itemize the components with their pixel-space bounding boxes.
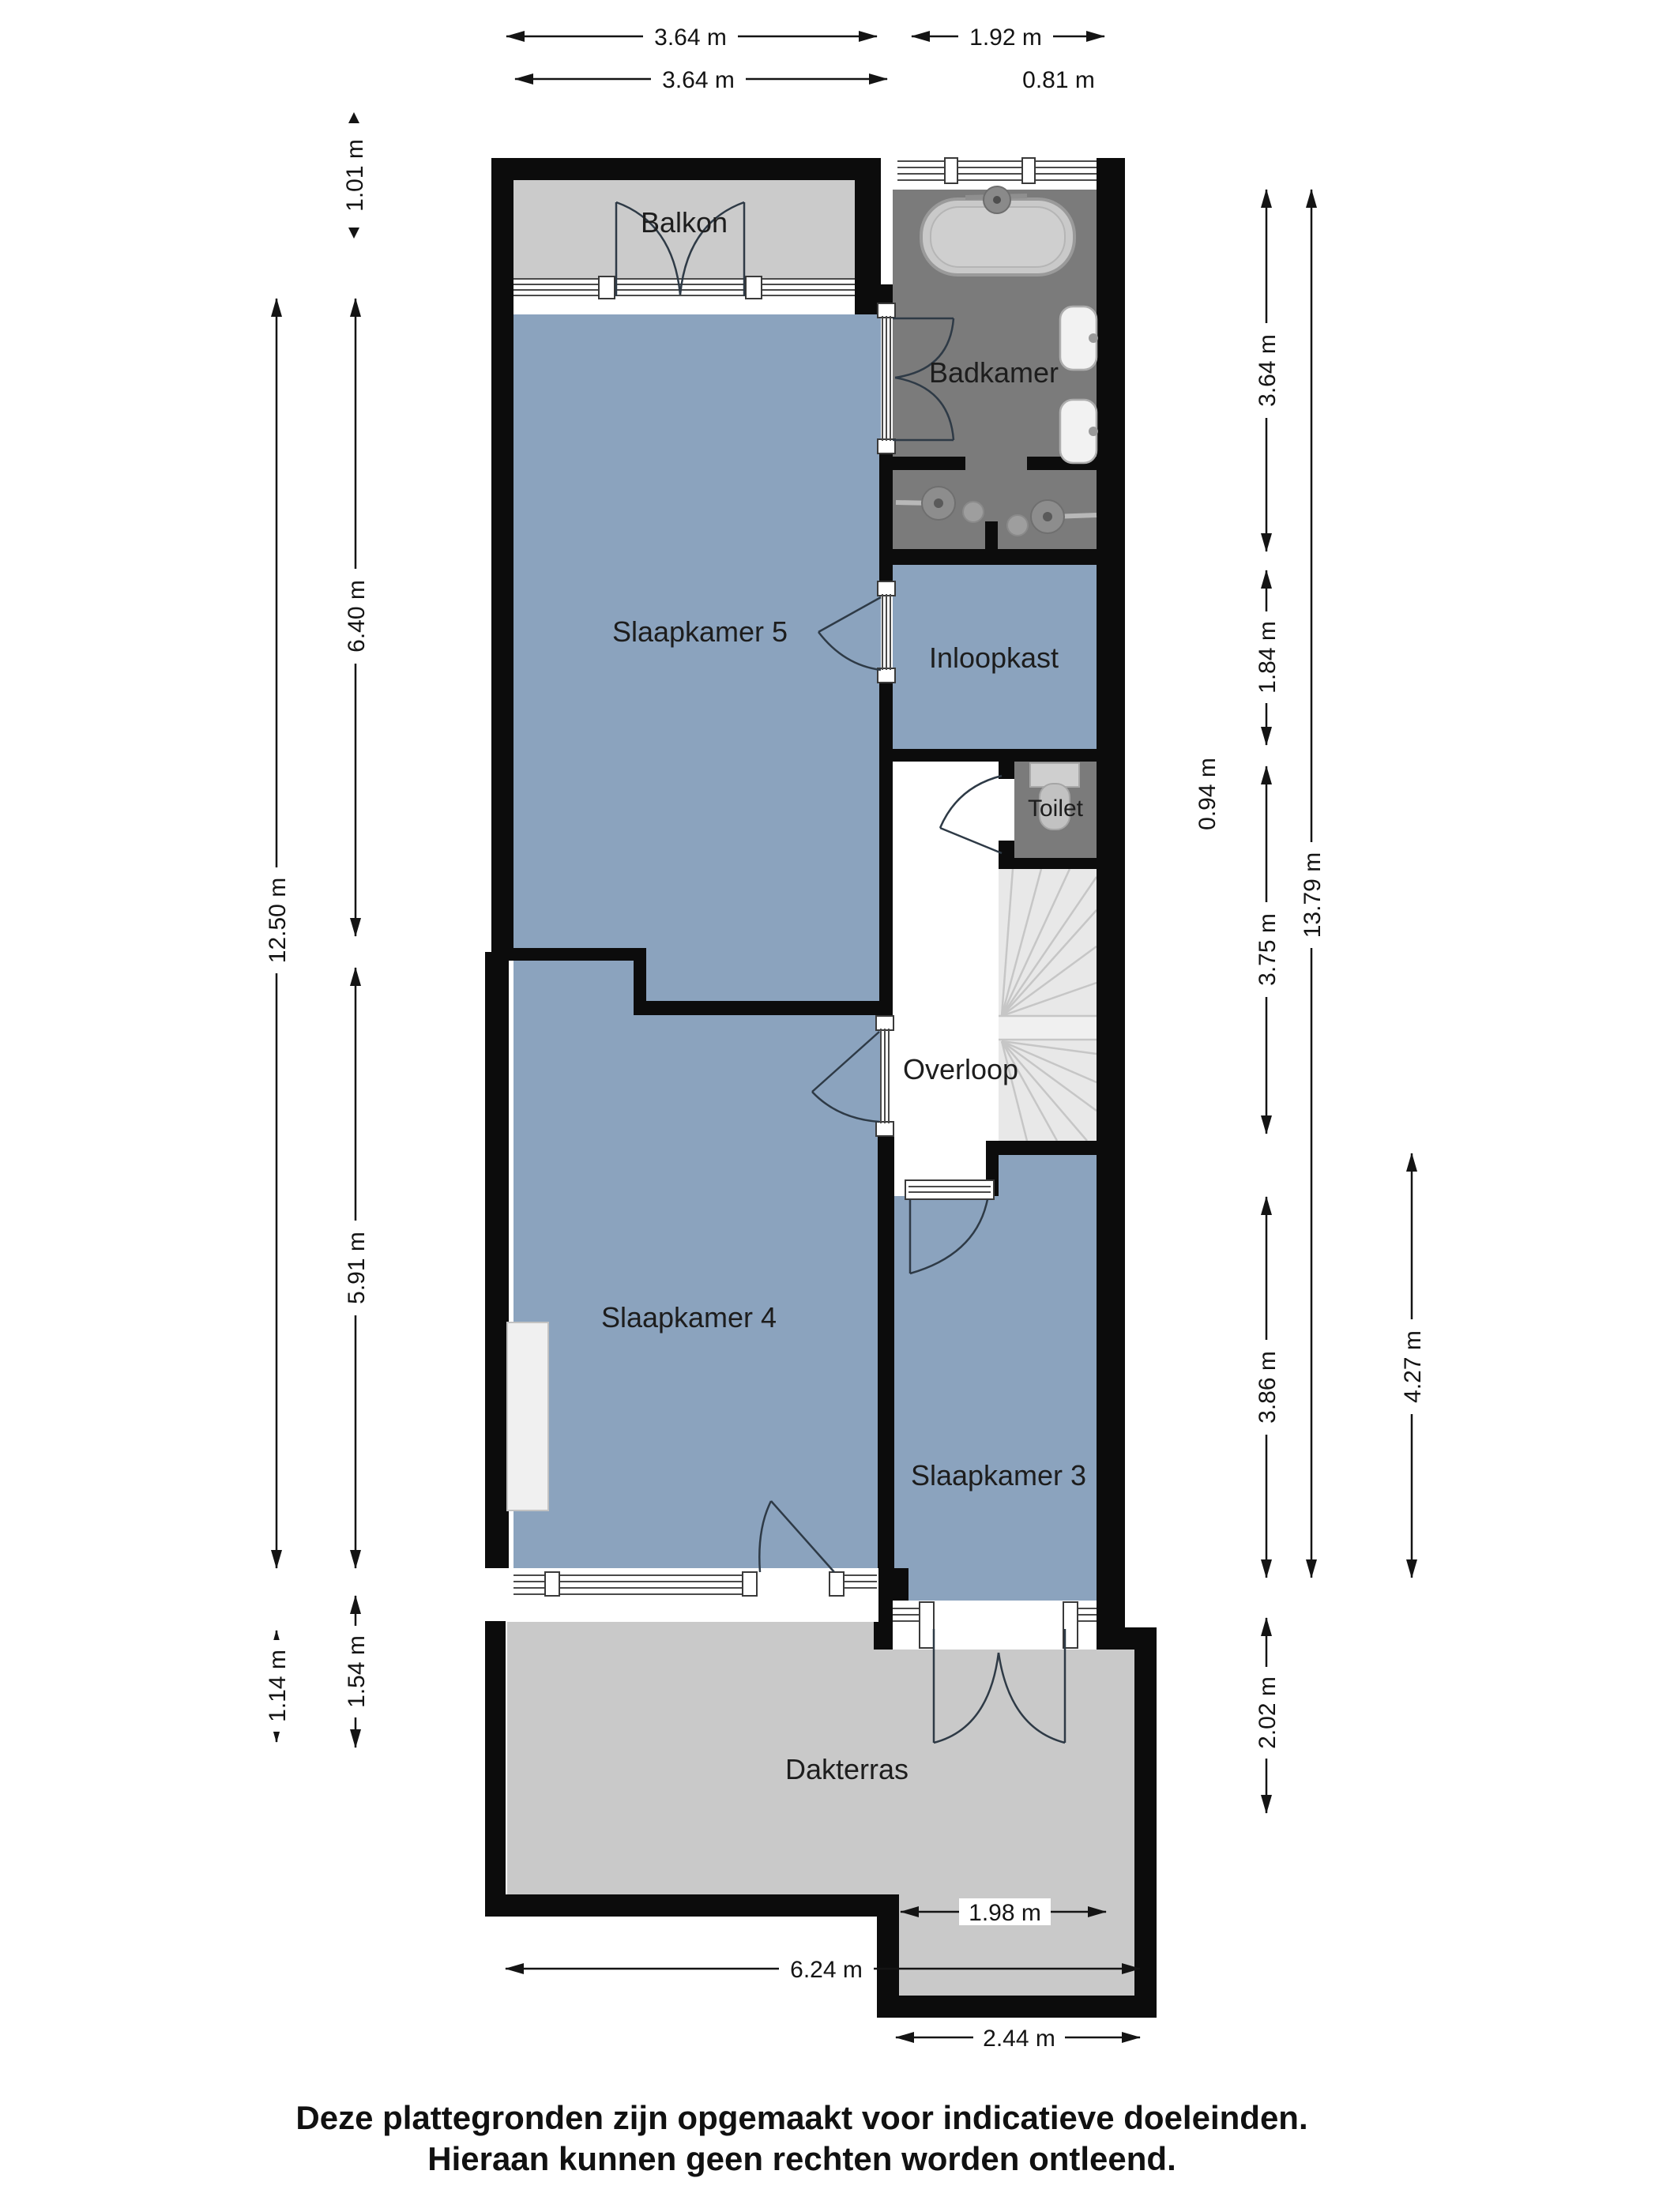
dim-right-toilet: 0.94 m [1194, 758, 1221, 830]
badkamer-window [893, 156, 1097, 190]
svg-text:1.84 m: 1.84 m [1255, 621, 1281, 694]
wall-niche [507, 1322, 548, 1510]
svg-text:3.86 m: 3.86 m [1255, 1351, 1281, 1424]
dim-right-total: 13.79 m [1298, 190, 1326, 1578]
disclaimer-line2: Hieraan kunnen geen rechten worden ontle… [0, 2139, 1604, 2180]
sink-icon [1060, 307, 1098, 370]
floorplan-page: Balkon Badkamer Slaapkamer 5 Inloopkast … [0, 0, 1659, 2212]
wall-segment [999, 841, 1014, 858]
dim-right-inloopkast: 1.84 m [1253, 570, 1281, 745]
svg-text:6.24 m: 6.24 m [790, 1957, 863, 1983]
svg-text:3.64 m: 3.64 m [662, 67, 735, 93]
svg-text:3.64 m: 3.64 m [654, 24, 727, 51]
disclaimer-line1: Deze plattegronden zijn opgemaakt voor i… [0, 2097, 1604, 2139]
dim-left-balkon-depth: 1.01 m [342, 112, 368, 239]
wall-segment [985, 521, 998, 553]
dim-right-terras: 2.02 m [1253, 1618, 1281, 1813]
dim-top-balkon-inner: 3.64 m [515, 66, 887, 93]
balkon-window [513, 276, 855, 314]
room-overloop-floor [893, 762, 999, 1183]
svg-text:6.40 m: 6.40 m [344, 580, 370, 653]
svg-text:13.79 m: 13.79 m [1300, 852, 1326, 938]
svg-text:3.64 m: 3.64 m [1255, 334, 1281, 407]
wall-segment [1134, 1627, 1157, 2018]
label-inloopkast: Inloopkast [929, 641, 1059, 674]
sink-icon [1060, 400, 1098, 463]
wall-segment [491, 314, 513, 952]
wall-segment [491, 948, 646, 961]
room-dakterras-floor [507, 1622, 1134, 1996]
svg-text:2.02 m: 2.02 m [1255, 1676, 1281, 1749]
wall-segment [879, 442, 893, 594]
svg-text:2.44 m: 2.44 m [983, 2026, 1055, 2052]
wall-segment [879, 671, 893, 1029]
label-badkamer: Badkamer [929, 356, 1059, 389]
dim-right-overloop: 3.75 m [1253, 766, 1281, 1134]
label-slaapkamer5: Slaapkamer 5 [612, 615, 788, 648]
svg-text:0.94 m: 0.94 m [1194, 758, 1221, 830]
dim-right-sk3: 3.86 m [1253, 1197, 1281, 1578]
svg-text:4.27 m: 4.27 m [1400, 1330, 1426, 1403]
label-toilet: Toilet [1028, 796, 1084, 822]
svg-text:0.81 m: 0.81 m [1022, 67, 1095, 93]
wall-segment [893, 549, 1097, 565]
floorplan-drawing: Balkon Badkamer Slaapkamer 5 Inloopkast … [0, 0, 1659, 2212]
svg-text:1.14 m: 1.14 m [265, 1650, 291, 1722]
dim-left-sk5: 6.40 m [342, 299, 370, 936]
svg-text:1.54 m: 1.54 m [344, 1635, 370, 1708]
wall-segment [893, 749, 1097, 762]
wall-segment [485, 1621, 506, 1917]
slaapkamer3-window [893, 1601, 1097, 1650]
dim-top-badkamer: 1.92 m [912, 23, 1104, 51]
dim-top-balkon-outer: 3.64 m [506, 23, 877, 51]
label-slaapkamer4: Slaapkamer 4 [601, 1301, 777, 1334]
label-dakterras: Dakterras [785, 1753, 908, 1785]
dim-right-badkamer: 3.64 m [1253, 190, 1281, 551]
svg-text:12.50 m: 12.50 m [265, 878, 291, 963]
room-slaapkamer4-floor [513, 961, 881, 1568]
dim-right-sk3-full: 4.27 m [1398, 1153, 1426, 1578]
dim-bottom-terras: 2.44 m [896, 2024, 1140, 2052]
dim-left-terras-edge: 1.14 m [263, 1631, 291, 1742]
dim-left-terras-step: 1.54 m [342, 1596, 370, 1747]
room-floors [507, 180, 1134, 1996]
room-slaapkamer5-floor [513, 312, 881, 1001]
svg-text:1.92 m: 1.92 m [969, 24, 1042, 51]
svg-text:5.91 m: 5.91 m [344, 1232, 370, 1304]
label-balkon: Balkon [641, 206, 728, 239]
svg-text:1.01 m: 1.01 m [342, 139, 368, 212]
slaapkamer4-window [509, 1568, 878, 1622]
disclaimer: Deze plattegronden zijn opgemaakt voor i… [0, 2097, 1604, 2180]
wall-segment [1097, 158, 1125, 1650]
dim-left-sk4: 5.91 m [342, 968, 370, 1568]
svg-text:1.98 m: 1.98 m [969, 1900, 1041, 1926]
wall-segment [485, 952, 509, 1568]
wall-segment [485, 1894, 899, 1917]
wall-segment [634, 1001, 893, 1015]
dim-top-offset: 0.81 m [1022, 67, 1095, 93]
wall-segment [855, 158, 881, 314]
dim-left-total: 12.50 m [263, 299, 291, 1568]
wall-segment [999, 858, 1097, 869]
wall-segment [893, 457, 965, 470]
svg-text:3.75 m: 3.75 m [1255, 913, 1281, 986]
wall-segment [986, 1141, 1097, 1155]
wall-segment [491, 180, 513, 314]
stairs-landing [999, 1016, 1097, 1040]
wall-segment [877, 1996, 1157, 2018]
wall-segment [491, 158, 880, 180]
label-overloop: Overloop [903, 1053, 1018, 1085]
label-slaapkamer3: Slaapkamer 3 [911, 1459, 1086, 1492]
room-slaapkamer3-floor [893, 1155, 1097, 1601]
